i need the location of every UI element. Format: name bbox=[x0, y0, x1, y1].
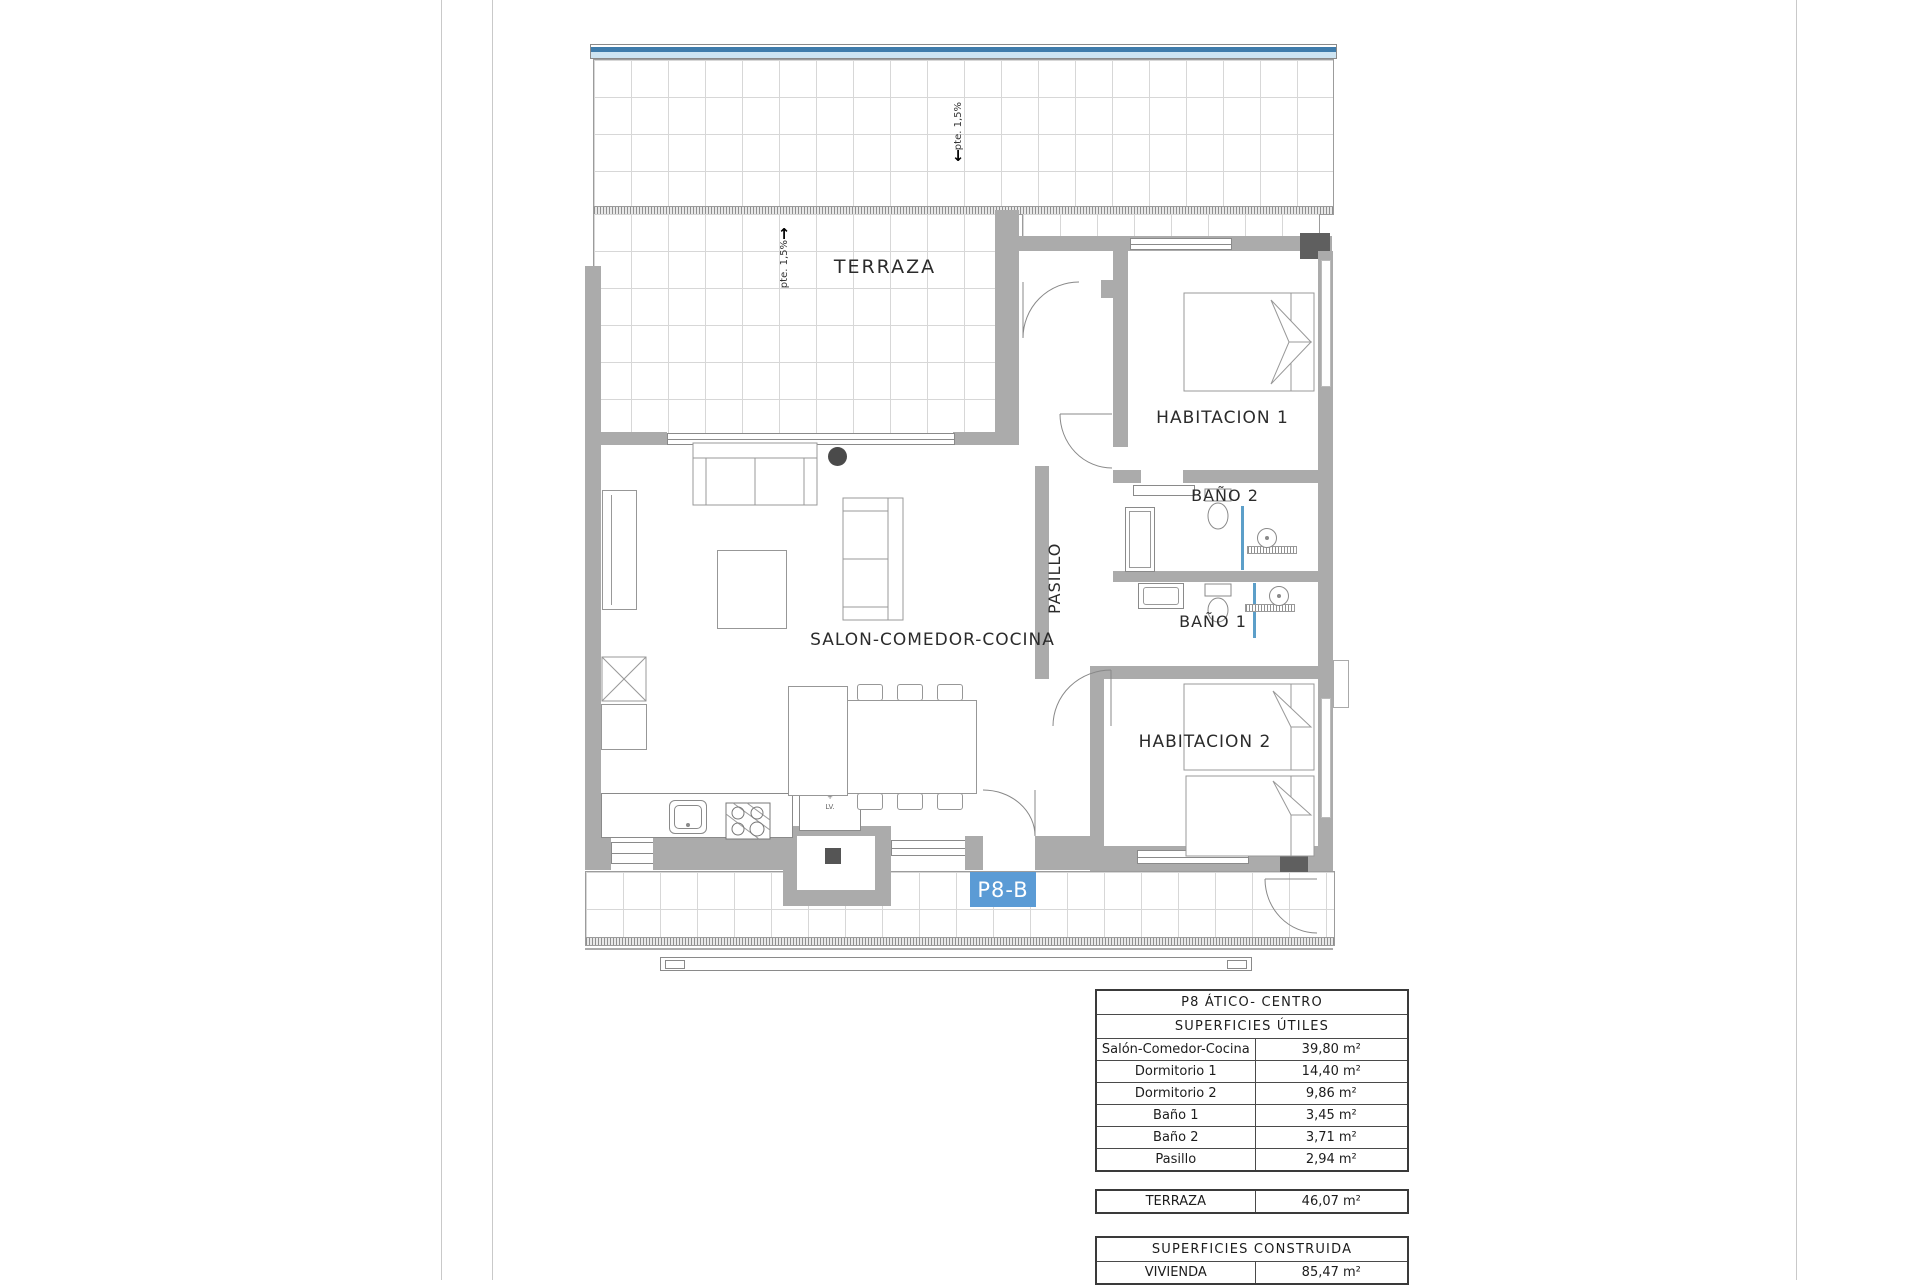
room-name: Dormitorio 1 bbox=[1097, 1061, 1256, 1082]
room-name: Baño 1 bbox=[1097, 1105, 1256, 1126]
exterior-unit bbox=[1333, 660, 1349, 708]
bottom-edge-hatch bbox=[585, 937, 1335, 946]
sheet-frame-line bbox=[1796, 0, 1797, 1280]
surfaces-table: P8 ÁTICO- CENTRO SUPERFICIES ÚTILES Saló… bbox=[1095, 989, 1409, 1172]
table-row: TERRAZA 46,07 m² bbox=[1097, 1191, 1407, 1212]
slope-text: pte. 1,5% bbox=[953, 102, 964, 150]
terrace-glass-railing bbox=[590, 44, 1337, 59]
slope-text: pte. 1,5% bbox=[779, 240, 790, 288]
room-label-bano1: BAÑO 1 bbox=[1153, 612, 1273, 631]
kitchen-tall-cabinet bbox=[602, 490, 637, 610]
habitacion1-door-arc bbox=[1058, 412, 1114, 470]
window bbox=[1321, 698, 1331, 818]
chair bbox=[937, 684, 963, 701]
room-label-terraza: TERRAZA bbox=[805, 256, 965, 278]
room-label-habitacion2: HABITACION 2 bbox=[1115, 732, 1295, 752]
bed-double bbox=[1183, 292, 1315, 392]
wall bbox=[965, 836, 983, 870]
door-opening bbox=[1141, 470, 1183, 483]
wall bbox=[1090, 666, 1333, 679]
shower-tray bbox=[1125, 507, 1155, 572]
roof-tile-grid-right bbox=[1022, 214, 1320, 237]
fridge bbox=[601, 656, 647, 702]
room-label-pasillo: PASILLO bbox=[1045, 536, 1064, 620]
table-row: Baño 2 3,71 m² bbox=[1097, 1126, 1407, 1148]
window bbox=[611, 842, 655, 864]
kitchen-unit bbox=[601, 704, 647, 750]
cooktop bbox=[725, 802, 771, 840]
bed-single bbox=[1185, 775, 1315, 857]
entry-door-mark bbox=[825, 848, 841, 864]
habitacion2-door-arc bbox=[1051, 668, 1113, 728]
table-row: Baño 1 3,45 m² bbox=[1097, 1104, 1407, 1126]
terrace-tile-grid bbox=[593, 214, 997, 444]
wall bbox=[1035, 836, 1090, 870]
unit-badge: P8-B bbox=[970, 872, 1036, 907]
wall bbox=[653, 836, 789, 870]
table-title: SUPERFICIES CONSTRUIDA bbox=[1097, 1238, 1407, 1261]
arrow-down-icon: ↓ bbox=[952, 150, 965, 162]
bathroom-sink bbox=[1138, 583, 1184, 609]
wall bbox=[585, 836, 611, 870]
window bbox=[1321, 260, 1331, 387]
bottom-balustrade bbox=[660, 957, 1252, 971]
sheet-frame-line bbox=[441, 0, 442, 1280]
room-name: TERRAZA bbox=[1097, 1191, 1256, 1212]
room-name: Pasillo bbox=[1097, 1149, 1256, 1170]
room-area: 3,71 m² bbox=[1256, 1127, 1407, 1148]
chair bbox=[897, 684, 923, 701]
chair bbox=[857, 684, 883, 701]
room-area: 14,40 m² bbox=[1256, 1061, 1407, 1082]
bottom-edge-line bbox=[585, 948, 1333, 950]
wall bbox=[995, 210, 1019, 445]
balustrade-post bbox=[1227, 960, 1247, 969]
chair bbox=[857, 793, 883, 810]
room-label-salon: SALON-COMEDOR-COCINA bbox=[810, 630, 1055, 650]
column bbox=[828, 447, 847, 466]
slope-annotation-lower: ↑ pte. 1,5% bbox=[773, 228, 795, 288]
bottom-terrace-tile-grid bbox=[585, 871, 1335, 939]
table-row: Dormitorio 2 9,86 m² bbox=[1097, 1082, 1407, 1104]
room-area: 2,94 m² bbox=[1256, 1149, 1407, 1170]
shower-head bbox=[1269, 586, 1289, 606]
chair bbox=[937, 793, 963, 810]
bed-single bbox=[1183, 683, 1315, 771]
salon-door-arc bbox=[981, 788, 1037, 838]
room-name: Salón-Comedor-Cocina bbox=[1097, 1039, 1256, 1060]
wall bbox=[953, 432, 1019, 445]
shower-head bbox=[1257, 528, 1277, 548]
wall-pillar bbox=[1101, 280, 1128, 298]
sheet-frame-line bbox=[492, 0, 493, 1280]
towel-rail bbox=[1247, 546, 1297, 554]
wall bbox=[585, 266, 601, 870]
towel-rail bbox=[1245, 604, 1295, 612]
room-name: Dormitorio 2 bbox=[1097, 1083, 1256, 1104]
shower-glass-panel bbox=[1241, 506, 1244, 570]
dining-table bbox=[847, 700, 977, 794]
table-title: P8 ÁTICO- CENTRO bbox=[1097, 991, 1407, 1014]
room-name: Baño 2 bbox=[1097, 1127, 1256, 1148]
construida-table: SUPERFICIES CONSTRUIDA VIVIENDA 85,47 m² bbox=[1095, 1236, 1409, 1285]
room-area: 39,80 m² bbox=[1256, 1039, 1407, 1060]
wall bbox=[1113, 571, 1333, 582]
room-area: 46,07 m² bbox=[1256, 1191, 1407, 1212]
sofa bbox=[692, 442, 818, 506]
terraza-table: TERRAZA 46,07 m² bbox=[1095, 1189, 1409, 1214]
room-area: 9,86 m² bbox=[1256, 1083, 1407, 1104]
table-row: Salón-Comedor-Cocina 39,80 m² bbox=[1097, 1038, 1407, 1060]
laundry-label-line3: LV. bbox=[800, 803, 860, 812]
exterior-door-arc bbox=[1263, 876, 1321, 936]
room-label-habitacion1: HABITACION 1 bbox=[1140, 408, 1305, 428]
coffee-table bbox=[717, 550, 787, 629]
kitchen-sink bbox=[669, 800, 707, 834]
arrow-up-icon: ↑ bbox=[778, 228, 791, 240]
chair bbox=[897, 793, 923, 810]
sofa-side bbox=[842, 497, 904, 621]
balustrade-post bbox=[665, 960, 685, 969]
table-subtitle: SUPERFICIES ÚTILES bbox=[1097, 1014, 1407, 1038]
floor-plan: pte. 1,5% ↓ TERRAZA ↑ pte. 1,5% bbox=[585, 38, 1342, 983]
window bbox=[1130, 238, 1232, 250]
wall bbox=[601, 432, 667, 445]
window bbox=[891, 840, 967, 856]
terrace-door-arc bbox=[1019, 278, 1081, 340]
slope-annotation-upper: pte. 1,5% ↓ bbox=[947, 102, 969, 162]
room-area: 3,45 m² bbox=[1256, 1105, 1407, 1126]
kitchen-island bbox=[788, 686, 848, 796]
table-row: Dormitorio 1 14,40 m² bbox=[1097, 1060, 1407, 1082]
room-label-bano2: BAÑO 2 bbox=[1165, 486, 1285, 505]
table-row: Pasillo 2,94 m² bbox=[1097, 1148, 1407, 1170]
